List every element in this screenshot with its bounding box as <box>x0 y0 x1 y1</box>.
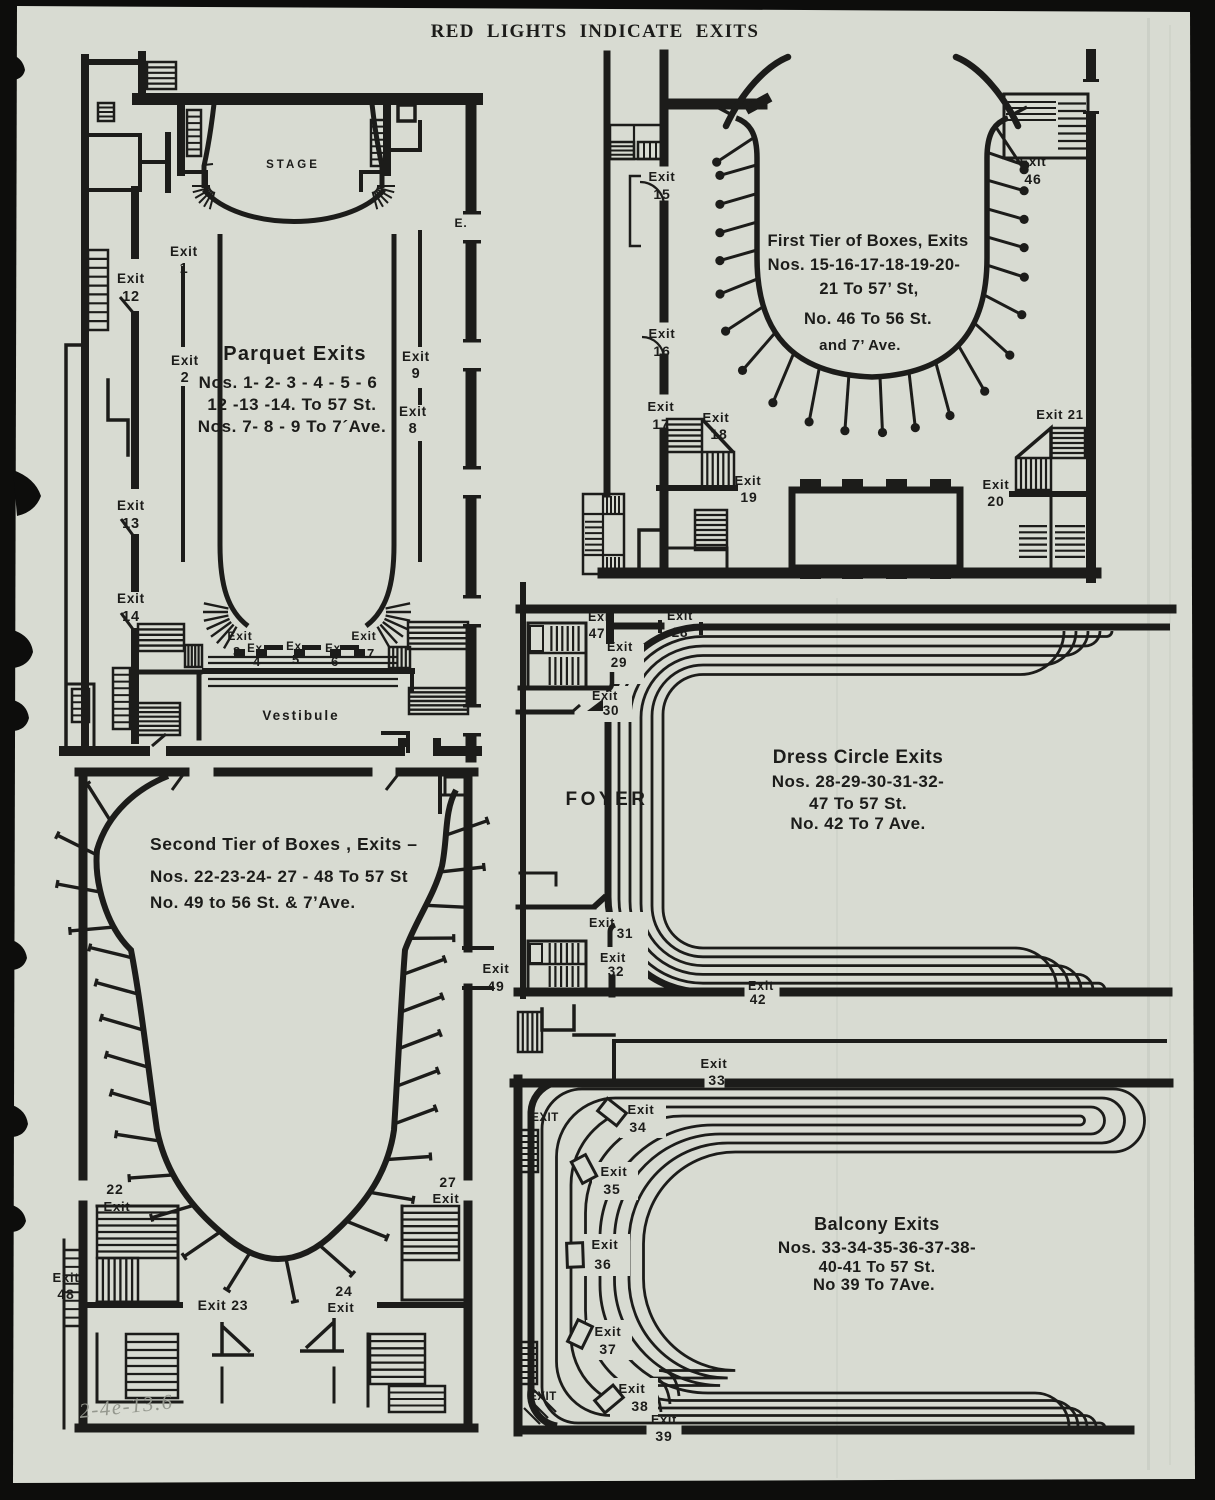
svg-text:Exit: Exit <box>982 477 1009 492</box>
svg-text:Exit: Exit <box>648 326 675 341</box>
svg-text:Nos. 7- 8 - 9 To 7´Ave.: Nos. 7- 8 - 9 To 7´Ave. <box>198 417 387 436</box>
svg-text:38: 38 <box>631 1398 648 1414</box>
svg-text:31: 31 <box>617 926 634 941</box>
svg-text:21 To 57’ St,: 21 To 57’ St, <box>819 280 918 298</box>
svg-text:Exit: Exit <box>748 979 774 993</box>
svg-text:34: 34 <box>629 1119 646 1135</box>
svg-text:14: 14 <box>122 609 140 625</box>
svg-text:49: 49 <box>487 978 504 994</box>
svg-text:Exit: Exit <box>402 349 430 364</box>
svg-text:First Tier of Boxes, Exits: First Tier of Boxes, Exits <box>768 232 969 250</box>
svg-text:Exit: Exit <box>594 1324 621 1339</box>
svg-text:No. 49 to 56 St. & 7’Ave.: No. 49 to 56 St. & 7’Ave. <box>150 893 356 912</box>
svg-text:Exit: Exit <box>171 353 199 368</box>
svg-text:2: 2 <box>181 370 190 386</box>
svg-text:Exit: Exit <box>600 1164 627 1179</box>
svg-text:No. 42 To 7 Ave.: No. 42 To 7 Ave. <box>790 814 925 833</box>
svg-text:Exit: Exit <box>627 1102 654 1117</box>
svg-text:Exit: Exit <box>592 689 618 703</box>
svg-text:Exit: Exit <box>734 473 761 488</box>
svg-text:Nos. 15-16-17-18-19-20-: Nos. 15-16-17-18-19-20- <box>768 256 961 274</box>
svg-text:Exit: Exit <box>432 1191 459 1206</box>
svg-text:Exit: Exit <box>482 961 509 976</box>
svg-text:Exit: Exit <box>117 498 145 513</box>
svg-text:E.: E. <box>455 216 468 230</box>
svg-text:Exit: Exit <box>700 1056 727 1071</box>
svg-text:46: 46 <box>1024 171 1041 187</box>
svg-text:Exit: Exit <box>117 591 145 606</box>
svg-text:42: 42 <box>750 992 767 1007</box>
svg-text:48: 48 <box>57 1286 74 1302</box>
svg-text:47: 47 <box>589 626 606 641</box>
svg-text:40-41 To 57 St.: 40-41 To 57 St. <box>819 1259 936 1276</box>
svg-text:Nos. 1- 2- 3 - 4 - 5 - 6: Nos. 1- 2- 3 - 4 - 5 - 6 <box>199 373 378 392</box>
svg-text:Exit: Exit <box>647 399 674 414</box>
svg-text:33: 33 <box>708 1072 725 1088</box>
svg-text:35: 35 <box>603 1181 620 1197</box>
svg-text:19: 19 <box>740 489 757 505</box>
svg-text:EXIT: EXIT <box>531 1112 559 1124</box>
svg-text:28: 28 <box>672 625 689 640</box>
svg-text:29: 29 <box>611 655 628 670</box>
svg-text:Exit: Exit <box>1019 154 1046 169</box>
svg-text:20: 20 <box>987 493 1004 509</box>
svg-text:RED LIGHTS INDICATE EXITS: RED LIGHTS INDICATE EXITS <box>431 21 760 42</box>
svg-text:Exit 23: Exit 23 <box>198 1297 249 1313</box>
svg-text:Nos. 33-34-35-36-37-38-: Nos. 33-34-35-36-37-38- <box>778 1238 976 1257</box>
svg-text:Exit: Exit <box>52 1270 79 1285</box>
svg-text:37: 37 <box>599 1341 616 1357</box>
svg-text:27: 27 <box>439 1174 456 1190</box>
svg-text:Exit 21: Exit 21 <box>1036 407 1084 422</box>
svg-text:9: 9 <box>412 366 421 382</box>
svg-text:Parquet Exits: Parquet Exits <box>223 343 366 365</box>
svg-text:Exit: Exit <box>351 629 376 643</box>
svg-text:7: 7 <box>367 646 375 661</box>
svg-text:No. 46 To 56 St.: No. 46 To 56 St. <box>804 310 932 328</box>
svg-text:Second Tier of Boxes , Exit: Second Tier of Boxes , Exits – <box>150 834 418 854</box>
svg-text:Dress Circle Exits: Dress Circle Exits <box>773 747 944 768</box>
svg-text:Exit: Exit <box>667 609 693 623</box>
svg-text:30: 30 <box>603 703 620 718</box>
svg-text:22: 22 <box>106 1181 123 1197</box>
svg-text:FOYER: FOYER <box>566 789 649 810</box>
svg-text:39: 39 <box>655 1428 672 1444</box>
svg-text:No 39 To 7Ave.: No 39 To 7Ave. <box>813 1276 935 1294</box>
svg-text:STAGE: STAGE <box>266 159 320 171</box>
svg-text:Exit: Exit <box>588 610 614 624</box>
svg-text:36: 36 <box>594 1256 611 1272</box>
svg-text:Exit: Exit <box>600 951 626 965</box>
svg-text:Exit: Exit <box>651 1413 677 1427</box>
svg-text:EXIT: EXIT <box>529 1391 557 1403</box>
svg-text:Nos. 28-29-30-31-32-: Nos. 28-29-30-31-32- <box>772 772 944 791</box>
svg-text:Exit: Exit <box>618 1381 645 1396</box>
svg-text:Exit: Exit <box>607 640 633 654</box>
svg-text:24: 24 <box>335 1283 352 1299</box>
svg-text:Balcony Exits: Balcony Exits <box>814 1214 940 1234</box>
svg-text:15: 15 <box>653 186 670 202</box>
svg-text:and 7’ Ave.: and 7’ Ave. <box>819 337 901 354</box>
svg-text:Exit: Exit <box>170 244 198 259</box>
svg-text:12: 12 <box>122 289 140 305</box>
svg-text:Vestibule: Vestibule <box>262 708 339 723</box>
svg-text:13: 13 <box>122 516 140 532</box>
svg-text:Exit: Exit <box>227 629 252 643</box>
svg-text:47 To 57 St.: 47 To 57 St. <box>809 794 907 813</box>
svg-text:Nos. 22-23-24- 27 - 48 To 57: Nos. 22-23-24- 27 - 48 To 57 St <box>150 867 408 886</box>
svg-text:1: 1 <box>180 261 189 277</box>
svg-text:8: 8 <box>409 421 418 437</box>
svg-text:Exit: Exit <box>591 1237 618 1252</box>
svg-text:16: 16 <box>653 343 670 359</box>
svg-text:Exit: Exit <box>399 404 427 419</box>
svg-text:Exit: Exit <box>117 271 145 286</box>
svg-text:Exit: Exit <box>648 169 675 184</box>
svg-text:12 -13 -14. To 57 St.: 12 -13 -14. To 57 St. <box>207 395 376 414</box>
svg-text:Exit: Exit <box>327 1300 354 1315</box>
